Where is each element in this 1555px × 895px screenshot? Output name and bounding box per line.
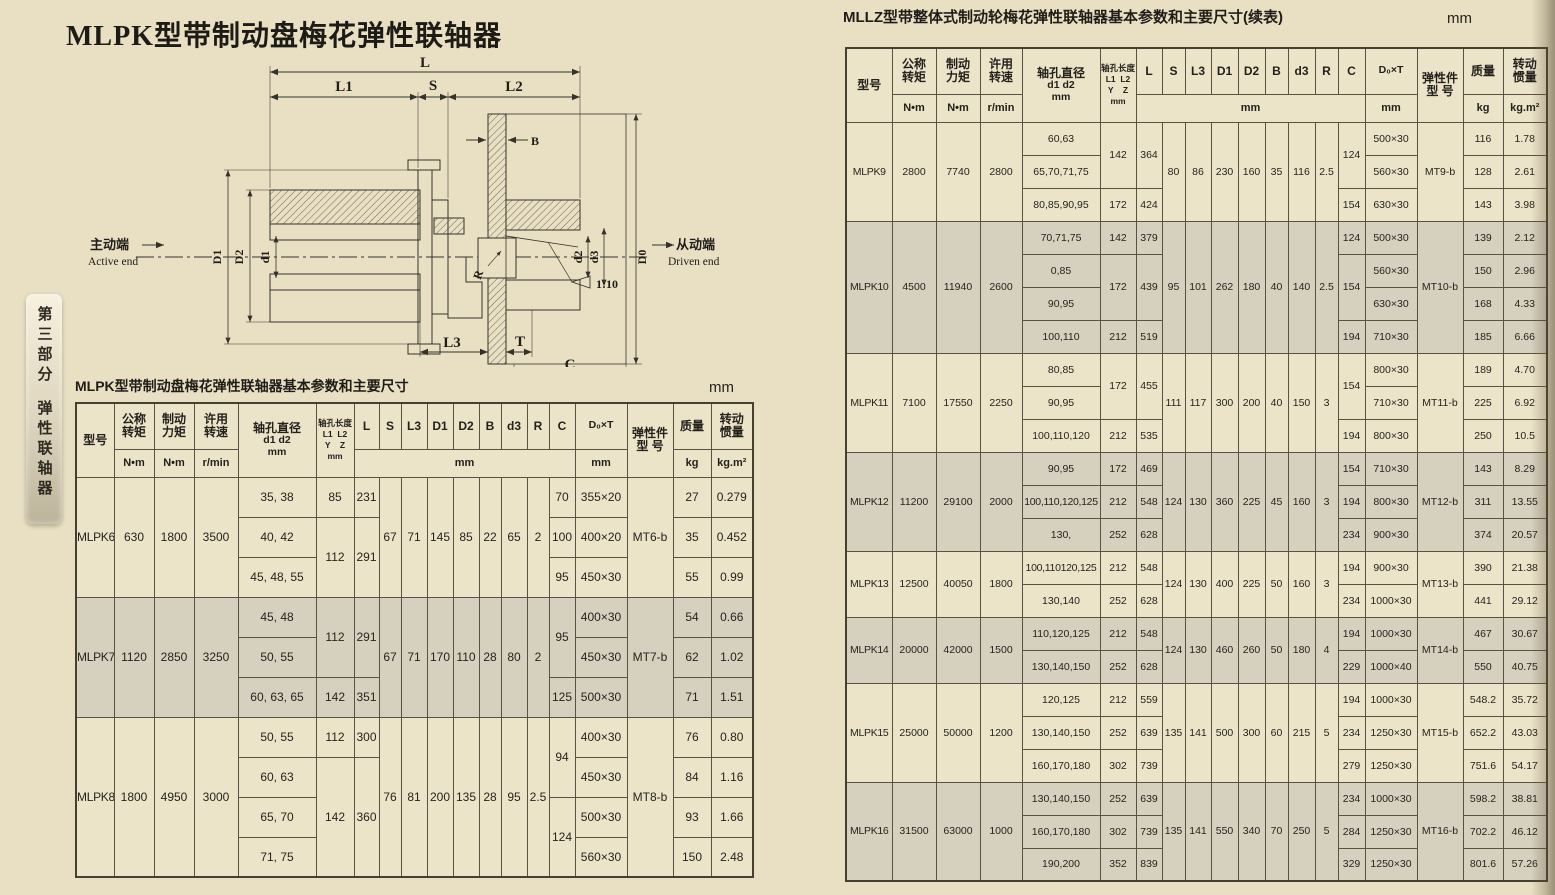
cell-L: 739 xyxy=(1136,815,1162,848)
cell-d0xt: 560×30 xyxy=(1365,155,1417,188)
cell-L: 455 xyxy=(1136,353,1162,419)
cell-mass: 189 xyxy=(1463,353,1503,386)
col-dim-D2: D2 xyxy=(1238,48,1265,94)
left-parameters-table: 型号公称转矩制动力矩许用转速轴孔直径d1 d2mm轴孔长度L1 L2Y ZmmL… xyxy=(75,402,754,878)
cell-L: 424 xyxy=(1136,188,1162,221)
cell-brake-torque: 29100 xyxy=(936,452,980,551)
cell-speed: 3000 xyxy=(194,717,238,877)
cell-d0xt: 800×30 xyxy=(1365,485,1417,518)
cell-elastic-model: MT13-b xyxy=(1417,551,1463,617)
cell-elastic-model: MT12-b xyxy=(1417,452,1463,551)
cell-mass: 225 xyxy=(1463,386,1503,419)
cell-inertia: 1.02 xyxy=(711,637,753,677)
cell-mass: 548.2 xyxy=(1463,683,1503,716)
unit-mm: mm xyxy=(575,449,627,477)
cell-mass: 76 xyxy=(673,717,711,757)
cell-d0xt: 500×30 xyxy=(575,797,627,837)
right-table-unit: mm xyxy=(1447,10,1472,27)
cell-model: MLPK15 xyxy=(846,683,892,782)
col-mass: 质量 xyxy=(1463,48,1503,94)
cell-bore: 90,95 xyxy=(1022,452,1100,485)
cell-dim-D1: 230 xyxy=(1211,122,1238,221)
cell-bore: 130,140,150 xyxy=(1022,716,1100,749)
left-table-caption-row: MLPK型带制动盘梅花弹性联轴器基本参数和主要尺寸 mm xyxy=(75,376,748,396)
cell-bore: 80,85 xyxy=(1022,353,1100,386)
cell-mass: 702.2 xyxy=(1463,815,1503,848)
col-bore-length: 轴孔长度L1 L2Y Zmm xyxy=(316,403,354,477)
cell-C: 94 xyxy=(549,717,575,797)
col-d0xt: D₀×T xyxy=(575,403,627,449)
cell-C: 154 xyxy=(1338,188,1365,221)
cell-C: 194 xyxy=(1338,485,1365,518)
cell-C: 234 xyxy=(1338,782,1365,815)
cell-dim-S: 135 xyxy=(1162,782,1185,881)
cell-dim-S: 124 xyxy=(1162,452,1185,551)
cell-bore: 60, 63 xyxy=(238,757,316,797)
cell-mass: 652.2 xyxy=(1463,716,1503,749)
cell-bore-length: 302 xyxy=(1100,749,1136,782)
cell-bore: 130,140,150 xyxy=(1022,782,1100,815)
cell-mass: 150 xyxy=(673,837,711,877)
cell-C: 100 xyxy=(549,517,575,557)
dim-label-L2: L2 xyxy=(505,79,523,95)
table-header: 型号公称转矩制动力矩许用转速轴孔直径d1 d2mm轴孔长度L1 L2Y ZmmL… xyxy=(846,48,1547,122)
unit-nm: N•m xyxy=(154,449,194,477)
cell-dim-B: 35 xyxy=(1265,122,1288,221)
col-model: 型号 xyxy=(76,403,114,477)
cell-mass: 374 xyxy=(1463,518,1503,551)
cell-model: MLPK6 xyxy=(76,477,114,597)
cell-bore: 100,110 xyxy=(1022,320,1100,353)
cell-dim-S: 111 xyxy=(1162,353,1185,452)
cell-C: 194 xyxy=(1338,551,1365,584)
cell-d0xt: 400×30 xyxy=(575,717,627,757)
cell-d0xt: 900×30 xyxy=(1365,518,1417,551)
unit-rpm: r/min xyxy=(194,449,238,477)
cell-bore-length: 142 xyxy=(1100,221,1136,254)
cell-d0xt: 630×30 xyxy=(1365,188,1417,221)
col-torque: 公称转矩 xyxy=(892,48,936,94)
col-dim-L3: L3 xyxy=(401,403,427,449)
dim-label-d1: d1 xyxy=(258,251,272,264)
cell-d0xt: 1000×40 xyxy=(1365,650,1417,683)
cell-dim-S: 67 xyxy=(379,597,401,717)
cell-L: 379 xyxy=(1136,221,1162,254)
table-row: MLPK711202850325045, 4811229167711701102… xyxy=(76,597,753,637)
cell-bore: 90,95 xyxy=(1022,287,1100,320)
cell-C: 124 xyxy=(549,797,575,877)
cell-speed: 2250 xyxy=(980,353,1022,452)
cell-brake-torque: 50000 xyxy=(936,683,980,782)
cell-dim-D2: 300 xyxy=(1238,683,1265,782)
cell-bore-length: 212 xyxy=(1100,419,1136,452)
cell-L: 364 xyxy=(1136,122,1162,188)
cell-d0xt: 630×30 xyxy=(1365,287,1417,320)
cell-torque: 12500 xyxy=(892,551,936,617)
cell-d0xt: 500×30 xyxy=(1365,122,1417,155)
col-inertia: 转动惯量 xyxy=(711,403,753,449)
cell-bore: 160,170,180 xyxy=(1022,815,1100,848)
cell-C: 234 xyxy=(1338,716,1365,749)
cell-mass: 150 xyxy=(1463,254,1503,287)
cell-bore: 160,170,180 xyxy=(1022,749,1100,782)
cell-mass: 35 xyxy=(673,517,711,557)
cell-bore-length: 142 xyxy=(1100,122,1136,188)
cell-model: MLPK10 xyxy=(846,221,892,353)
col-brake: 制动力矩 xyxy=(154,403,194,449)
cell-dim-R: 2 xyxy=(527,597,549,717)
cell-dim-L3: 141 xyxy=(1185,782,1211,881)
dim-label-D0: D0 xyxy=(635,250,649,265)
dim-label-C: C xyxy=(565,357,576,367)
cell-mass: 250 xyxy=(1463,419,1503,452)
cell-bore-length: 212 xyxy=(1100,320,1136,353)
right-parameters-table: 型号公称转矩制动力矩许用转速轴孔直径d1 d2mm轴孔长度L1 L2Y ZmmL… xyxy=(845,47,1548,882)
col-dim-d3: d3 xyxy=(501,403,527,449)
cell-bore-length: 252 xyxy=(1100,518,1136,551)
cell-mass: 751.6 xyxy=(1463,749,1503,782)
cell-elastic-model: MT10-b xyxy=(1417,221,1463,353)
cell-mass: 143 xyxy=(1463,188,1503,221)
col-mass: 质量 xyxy=(673,403,711,449)
cell-bore-length: 252 xyxy=(1100,716,1136,749)
cell-dim-B: 22 xyxy=(479,477,501,597)
cell-bore: 100,110120,125 xyxy=(1022,551,1100,584)
cell-inertia: 0.99 xyxy=(711,557,753,597)
col-dim-R: R xyxy=(1315,48,1338,94)
cell-dim-R: 2.5 xyxy=(527,717,549,877)
cell-dim-R: 2 xyxy=(527,477,549,597)
cell-mass: 27 xyxy=(673,477,711,517)
cell-L: 628 xyxy=(1136,518,1162,551)
cell-dim-d3: 160 xyxy=(1288,551,1315,617)
cell-speed: 2000 xyxy=(980,452,1022,551)
cell-bore: 80,85,90,95 xyxy=(1022,188,1100,221)
cell-bore: 65, 70 xyxy=(238,797,316,837)
unit-kg: kg xyxy=(673,449,711,477)
page-edge-shadow xyxy=(1531,0,1555,895)
cell-mass: 311 xyxy=(1463,485,1503,518)
cell-model: MLPK13 xyxy=(846,551,892,617)
cell-bore-length: 112 xyxy=(316,597,354,677)
cell-dim-d3: 160 xyxy=(1288,452,1315,551)
cell-bore: 35, 38 xyxy=(238,477,316,517)
col-dim-S: S xyxy=(1162,48,1185,94)
cell-elastic-model: MT16-b xyxy=(1417,782,1463,881)
col-dim-S: S xyxy=(379,403,401,449)
cell-model: MLPK9 xyxy=(846,122,892,221)
cell-bore-length: 252 xyxy=(1100,584,1136,617)
cell-bore-length: 352 xyxy=(1100,848,1136,881)
coupling-diagram: L L1 S L2 B R 1:10 D1 D2 d1 d2 d3 D0 L3 … xyxy=(80,52,720,367)
cell-dim-D1: 550 xyxy=(1211,782,1238,881)
unit-kgm2: kg.m² xyxy=(711,449,753,477)
cell-d0xt: 450×30 xyxy=(575,757,627,797)
cell-C: 194 xyxy=(1338,683,1365,716)
cell-L: 639 xyxy=(1136,716,1162,749)
cell-C: 229 xyxy=(1338,650,1365,683)
cell-d0xt: 1000×30 xyxy=(1365,683,1417,716)
cell-bore: 120,125 xyxy=(1022,683,1100,716)
cell-dim-D2: 85 xyxy=(453,477,479,597)
col-bore-length: 轴孔长度L1 L2Y Zmm xyxy=(1100,48,1136,122)
cell-brake-torque: 17550 xyxy=(936,353,980,452)
cell-torque: 11200 xyxy=(892,452,936,551)
cell-bore: 60,63 xyxy=(1022,122,1100,155)
cell-L: 639 xyxy=(1136,782,1162,815)
cell-bore-length: 212 xyxy=(1100,617,1136,650)
cell-dim-L3: 141 xyxy=(1185,683,1211,782)
cell-dim-d3: 150 xyxy=(1288,353,1315,452)
cell-L: 535 xyxy=(1136,419,1162,452)
cell-inertia: 0.80 xyxy=(711,717,753,757)
active-end-cn: 主动端 xyxy=(90,237,129,252)
cell-d0xt: 1000×30 xyxy=(1365,782,1417,815)
col-dim-d3: d3 xyxy=(1288,48,1315,94)
cell-bore-length: 302 xyxy=(1100,815,1136,848)
cell-elastic-model: MT9-b xyxy=(1417,122,1463,221)
cell-bore-length: 212 xyxy=(1100,683,1136,716)
cell-dim-B: 50 xyxy=(1265,551,1288,617)
cell-bore-length: 212 xyxy=(1100,485,1136,518)
cell-bore: 70,71,75 xyxy=(1022,221,1100,254)
table-row: MLPK1312500400501800100,110120,125212548… xyxy=(846,551,1547,584)
cell-dim-D1: 200 xyxy=(427,717,453,877)
cell-L: 519 xyxy=(1136,320,1162,353)
cell-L: 839 xyxy=(1136,848,1162,881)
cell-elastic-model: MT14-b xyxy=(1417,617,1463,683)
cell-dim-L3: 71 xyxy=(401,477,427,597)
cell-bore-length: 85 xyxy=(316,477,354,517)
col-dim-R: R xyxy=(527,403,549,449)
cell-dim-R: 3 xyxy=(1315,551,1338,617)
cell-elastic-model: MT15-b xyxy=(1417,683,1463,782)
cell-bore: 130,140 xyxy=(1022,584,1100,617)
cell-dim-S: 124 xyxy=(1162,551,1185,617)
cell-dim-D1: 500 xyxy=(1211,683,1238,782)
cell-dim-L3: 101 xyxy=(1185,221,1211,353)
cell-dim-d3: 65 xyxy=(501,477,527,597)
cell-dim-D2: 340 xyxy=(1238,782,1265,881)
cell-bore-length: 252 xyxy=(1100,782,1136,815)
cell-dim-d3: 95 xyxy=(501,717,527,877)
unit-kg: kg xyxy=(1463,94,1503,122)
cell-d0xt: 450×30 xyxy=(575,557,627,597)
driven-end-cn: 从动端 xyxy=(676,237,715,252)
cell-dim-D2: 110 xyxy=(453,597,479,717)
cell-d0xt: 710×30 xyxy=(1365,320,1417,353)
cell-dim-D2: 180 xyxy=(1238,221,1265,353)
cell-brake-torque: 11940 xyxy=(936,221,980,353)
cell-d0xt: 500×30 xyxy=(1365,221,1417,254)
cell-bore-length: 172 xyxy=(1100,353,1136,419)
cell-bore-length: 112 xyxy=(316,517,354,597)
cell-bore-length: 212 xyxy=(1100,551,1136,584)
table-row: MLPK1631500630001000130,140,150252639135… xyxy=(846,782,1547,815)
cell-dim-B: 45 xyxy=(1265,452,1288,551)
cell-dim-D2: 160 xyxy=(1238,122,1265,221)
cell-brake-torque: 7740 xyxy=(936,122,980,221)
cell-d0xt: 800×30 xyxy=(1365,353,1417,386)
cell-brake-torque: 42000 xyxy=(936,617,980,683)
cell-torque: 7100 xyxy=(892,353,936,452)
cell-C: 194 xyxy=(1338,320,1365,353)
col-dim-L: L xyxy=(1136,48,1162,94)
cell-dim-R: 5 xyxy=(1315,782,1338,881)
cell-dim-d3: 116 xyxy=(1288,122,1315,221)
cell-C: 95 xyxy=(549,597,575,677)
col-speed: 许用转速 xyxy=(980,48,1022,94)
dim-label-d3: d3 xyxy=(587,251,601,264)
cell-mass: 128 xyxy=(1463,155,1503,188)
cell-speed: 2600 xyxy=(980,221,1022,353)
cell-C: 194 xyxy=(1338,419,1365,452)
cell-torque: 2800 xyxy=(892,122,936,221)
cell-dim-D2: 225 xyxy=(1238,551,1265,617)
cell-bore-length: 112 xyxy=(316,717,354,757)
cell-dim-B: 50 xyxy=(1265,617,1288,683)
cell-mass: 143 xyxy=(1463,452,1503,485)
cell-d0xt: 560×30 xyxy=(1365,254,1417,287)
cell-dim-D2: 225 xyxy=(1238,452,1265,551)
cell-mass: 116 xyxy=(1463,122,1503,155)
side-tab-section-label: 弹性联轴器 xyxy=(34,400,55,500)
cell-L: 291 xyxy=(354,517,379,597)
dim-label-L3: L3 xyxy=(443,335,461,351)
side-tab-left: 第三部分 弹性联轴器 xyxy=(26,294,62,524)
cell-dim-D1: 145 xyxy=(427,477,453,597)
cell-torque: 4500 xyxy=(892,221,936,353)
table-body: MLPK928007740280060,63142364808623016035… xyxy=(846,122,1547,881)
cell-bore-length: 142 xyxy=(316,677,354,717)
cell-dim-D1: 300 xyxy=(1211,353,1238,452)
col-dim-C: C xyxy=(549,403,575,449)
unit-nm: N•m xyxy=(936,94,980,122)
right-table-caption: MLLZ型带整体式制动轮梅花弹性联轴器基本参数和主要尺寸(续表) xyxy=(843,6,1283,27)
cell-bore-length: 142 xyxy=(316,757,354,877)
cell-dim-S: 124 xyxy=(1162,617,1185,683)
cell-mass: 93 xyxy=(673,797,711,837)
cell-dim-D1: 170 xyxy=(427,597,453,717)
unit-nm: N•m xyxy=(892,94,936,122)
cell-dim-L3: 71 xyxy=(401,597,427,717)
col-dim-D1: D1 xyxy=(427,403,453,449)
col-dim-D2: D2 xyxy=(453,403,479,449)
cell-d0xt: 400×30 xyxy=(575,597,627,637)
cell-dim-S: 135 xyxy=(1162,683,1185,782)
cell-model: MLPK14 xyxy=(846,617,892,683)
cell-C: 154 xyxy=(1338,353,1365,419)
cell-brake-torque: 63000 xyxy=(936,782,980,881)
cell-C: 125 xyxy=(549,677,575,717)
cell-L: 548 xyxy=(1136,551,1162,584)
col-dim-D1: D1 xyxy=(1211,48,1238,94)
cell-model: MLPK12 xyxy=(846,452,892,551)
dim-label-D2: D2 xyxy=(232,250,246,265)
cell-speed: 1800 xyxy=(980,551,1022,617)
cell-brake-torque: 4950 xyxy=(154,717,194,877)
cell-C: 234 xyxy=(1338,584,1365,617)
cell-bore: 65,70,71,75 xyxy=(1022,155,1100,188)
col-d0xt: D₀×T xyxy=(1365,48,1417,94)
cell-mass: 84 xyxy=(673,757,711,797)
cell-d0xt: 800×30 xyxy=(1365,419,1417,452)
cell-d0xt: 400×20 xyxy=(575,517,627,557)
unit-mm: mm xyxy=(1365,94,1417,122)
cell-inertia: 0.452 xyxy=(711,517,753,557)
cell-speed: 1200 xyxy=(980,683,1022,782)
cell-bore: 60, 63, 65 xyxy=(238,677,316,717)
cell-dim-D1: 262 xyxy=(1211,221,1238,353)
cell-mass: 185 xyxy=(1463,320,1503,353)
cell-bore: 130, xyxy=(1022,518,1100,551)
cell-dim-B: 40 xyxy=(1265,221,1288,353)
cell-inertia: 1.66 xyxy=(711,797,753,837)
page-title: MLPK型带制动盘梅花弹性联轴器 xyxy=(66,14,502,54)
unit-nm: N•m xyxy=(114,449,154,477)
cell-C: 154 xyxy=(1338,254,1365,320)
cell-bore: 40, 42 xyxy=(238,517,316,557)
cell-L: 469 xyxy=(1136,452,1162,485)
cell-elastic-model: MT11-b xyxy=(1417,353,1463,452)
cell-elastic-model: MT8-b xyxy=(627,717,673,877)
cell-d0xt: 500×30 xyxy=(575,677,627,717)
table-row: MLPK11710017550225080,851724551111173002… xyxy=(846,353,1547,386)
cell-dim-L3: 86 xyxy=(1185,122,1211,221)
cell-mass: 441 xyxy=(1463,584,1503,617)
cell-C: 279 xyxy=(1338,749,1365,782)
cell-L: 439 xyxy=(1136,254,1162,320)
cell-dim-L3: 130 xyxy=(1185,452,1211,551)
cell-d0xt: 560×30 xyxy=(575,837,627,877)
dim-label-D1: D1 xyxy=(210,250,224,265)
cell-mass: 467 xyxy=(1463,617,1503,650)
cell-d0xt: 1250×30 xyxy=(1365,848,1417,881)
cell-dim-D2: 200 xyxy=(1238,353,1265,452)
left-table-unit: mm xyxy=(709,379,734,396)
col-dim-L: L xyxy=(354,403,379,449)
cell-mass: 550 xyxy=(1463,650,1503,683)
col-elastic-element: 弹性件型 号 xyxy=(627,403,673,477)
cell-model: MLPK8 xyxy=(76,717,114,877)
col-model: 型号 xyxy=(846,48,892,122)
cell-dim-D1: 360 xyxy=(1211,452,1238,551)
cell-torque: 31500 xyxy=(892,782,936,881)
dim-label-L: L xyxy=(420,55,430,71)
cell-L: 360 xyxy=(354,757,379,877)
cell-dim-d3: 80 xyxy=(501,597,527,717)
cell-dim-R: 3 xyxy=(1315,353,1338,452)
cell-bore: 90,95 xyxy=(1022,386,1100,419)
col-torque: 公称转矩 xyxy=(114,403,154,449)
cell-elastic-model: MT7-b xyxy=(627,597,673,717)
cell-speed: 3250 xyxy=(194,597,238,717)
cell-brake-torque: 40050 xyxy=(936,551,980,617)
cell-dim-R: 4 xyxy=(1315,617,1338,683)
col-dim-C: C xyxy=(1338,48,1365,94)
cell-L: 628 xyxy=(1136,584,1162,617)
cell-bore-length: 252 xyxy=(1100,650,1136,683)
col-bore-diameter: 轴孔直径d1 d2mm xyxy=(1022,48,1100,122)
cell-dim-R: 3 xyxy=(1315,452,1338,551)
cell-torque: 630 xyxy=(114,477,154,597)
cell-mass: 55 xyxy=(673,557,711,597)
table-row: MLPK121120029100200090,95172469124130360… xyxy=(846,452,1547,485)
cell-model: MLPK7 xyxy=(76,597,114,717)
cell-dim-S: 95 xyxy=(1162,221,1185,353)
col-brake: 制动力矩 xyxy=(936,48,980,94)
cell-mass: 62 xyxy=(673,637,711,677)
